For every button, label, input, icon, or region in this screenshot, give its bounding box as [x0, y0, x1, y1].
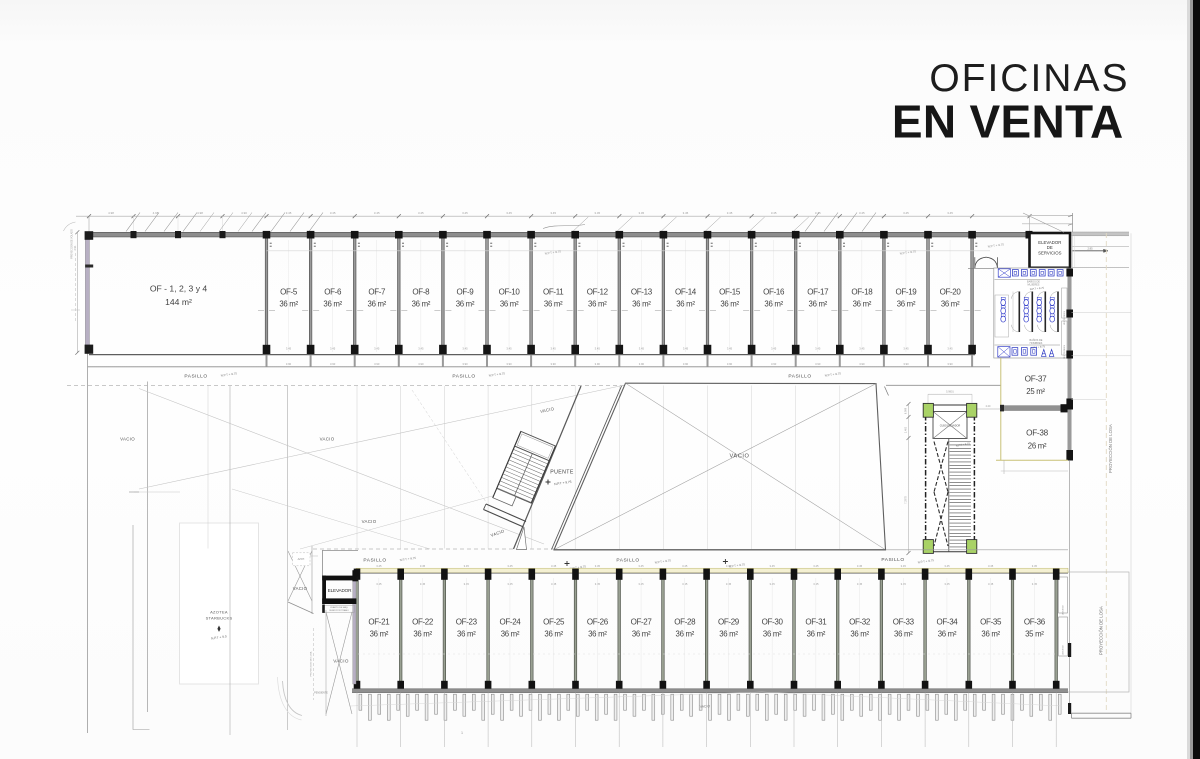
svg-text:OF-26: OF-26	[587, 618, 609, 627]
svg-text:3.45: 3.45	[770, 582, 776, 586]
svg-text:3.45: 3.45	[594, 211, 600, 215]
svg-text:3.90: 3.90	[330, 362, 336, 366]
svg-text:N.P.T + 9.75: N.P.T + 9.75	[899, 249, 916, 255]
svg-text:OF-24: OF-24	[499, 618, 521, 627]
svg-text:VACIO: VACIO	[320, 437, 335, 442]
svg-text:36 m²: 36 m²	[500, 300, 519, 309]
svg-text:3.45: 3.45	[506, 211, 512, 215]
svg-text:3.45: 3.45	[947, 211, 953, 215]
svg-text:3.45: 3.45	[286, 211, 292, 215]
svg-text:OF-5: OF-5	[280, 288, 298, 297]
svg-text:36 m²: 36 m²	[720, 300, 739, 309]
svg-text:PASILLO: PASILLO	[881, 557, 904, 563]
svg-text:VACIO: VACIO	[333, 659, 349, 664]
svg-text:VESTIDORES: VESTIDORES	[1064, 344, 1066, 359]
svg-text:PENDIENTE: PENDIENTE	[314, 692, 328, 695]
svg-text:OF-11: OF-11	[543, 288, 564, 297]
svg-text:36 m²: 36 m²	[676, 630, 695, 639]
svg-text:VACIO: VACIO	[120, 437, 135, 442]
svg-text:2.85: 2.85	[1087, 247, 1093, 251]
svg-text:OF - 1, 2, 3 y 4: OF - 1, 2, 3 y 4	[150, 284, 208, 294]
svg-text:3.45: 3.45	[813, 564, 819, 568]
svg-text:36 m²: 36 m²	[413, 630, 432, 639]
svg-text:OF-30: OF-30	[762, 618, 784, 627]
svg-text:3.45: 3.45	[901, 564, 907, 568]
svg-text:3.90: 3.90	[639, 362, 645, 366]
svg-text:OF-38: OF-38	[1026, 429, 1048, 438]
svg-text:OF-28: OF-28	[674, 618, 696, 627]
svg-text:3.45: 3.45	[770, 564, 776, 568]
svg-text:PROYECCIÓN DE LOSA: PROYECCIÓN DE LOSA	[1108, 424, 1113, 473]
svg-text:CUARTO DE MAQ.: CUARTO DE MAQ.	[330, 606, 348, 609]
svg-text:SERVICIOS: SERVICIOS	[1038, 251, 1061, 256]
svg-text:3.45: 3.45	[420, 564, 426, 568]
svg-text:36 m²: 36 m²	[544, 630, 563, 639]
svg-text:36 m²: 36 m²	[544, 300, 563, 309]
svg-text:SUBIR POR TRAMO: SUBIR POR TRAMO	[329, 609, 349, 612]
svg-text:OF-16: OF-16	[763, 288, 785, 297]
svg-text:3.45: 3.45	[551, 347, 557, 351]
svg-text:3.45: 3.45	[595, 564, 601, 568]
svg-text:3.45: 3.45	[595, 347, 601, 351]
svg-text:VACIO: VACIO	[540, 406, 555, 414]
svg-text:3.45: 3.45	[859, 347, 865, 351]
svg-text:N.P.T + 9.75: N.P.T + 9.75	[220, 371, 237, 377]
svg-text:PASILLO: PASILLO	[616, 557, 639, 563]
svg-text:VACIO: VACIO	[700, 704, 711, 709]
svg-text:25 m²: 25 m²	[1026, 387, 1045, 396]
svg-text:7.2978: 7.2978	[905, 496, 908, 504]
svg-text:3.45: 3.45	[464, 564, 470, 568]
svg-text:3.45: 3.45	[374, 347, 380, 351]
svg-text:3.45: 3.45	[330, 211, 336, 215]
svg-text:N.P.T + 9.75: N.P.T + 9.75	[824, 371, 841, 377]
svg-text:3.90: 3.90	[374, 362, 380, 366]
svg-text:AZOT.: AZOT.	[298, 558, 305, 561]
svg-text:3.45: 3.45	[682, 582, 688, 586]
svg-text:OF-9: OF-9	[457, 288, 475, 297]
svg-text:36 m²: 36 m²	[938, 630, 957, 639]
svg-text:OF-6: OF-6	[324, 288, 342, 297]
svg-text:3.90: 3.90	[286, 362, 292, 366]
svg-text:3.90: 3.90	[947, 362, 953, 366]
svg-text:3.45: 3.45	[376, 582, 382, 586]
svg-text:3.45: 3.45	[374, 211, 380, 215]
svg-text:AZOTEA: AZOTEA	[210, 610, 228, 615]
svg-text:3.45: 3.45	[903, 211, 909, 215]
svg-text:OF-23: OF-23	[456, 618, 478, 627]
svg-text:35 m²: 35 m²	[1025, 630, 1044, 639]
svg-text:3.90: 3.90	[506, 362, 512, 366]
svg-text:3.90: 3.90	[683, 362, 689, 366]
svg-text:PASILLO: PASILLO	[363, 557, 386, 563]
svg-text:3.90: 3.90	[859, 362, 865, 366]
svg-text:2.20: 2.20	[986, 405, 991, 408]
svg-text:3.45: 3.45	[462, 347, 468, 351]
svg-text:3.45: 3.45	[639, 347, 645, 351]
svg-text:3.45: 3.45	[947, 347, 953, 351]
svg-text:3.45: 3.45	[944, 582, 950, 586]
svg-text:OF-7: OF-7	[368, 288, 386, 297]
svg-text:36 m²: 36 m²	[676, 300, 695, 309]
svg-text:3.45: 3.45	[420, 582, 426, 586]
svg-text:OF-33: OF-33	[893, 618, 915, 627]
svg-text:OF-17: OF-17	[807, 288, 829, 297]
svg-text:1: 1	[461, 731, 463, 735]
svg-text:3.45: 3.45	[727, 211, 733, 215]
svg-text:36 m²: 36 m²	[763, 630, 782, 639]
svg-text:N.P.T + 9.75: N.P.T + 9.75	[987, 242, 1004, 248]
svg-text:OF-15: OF-15	[719, 288, 741, 297]
svg-text:EN VENTA: EN VENTA	[892, 96, 1124, 148]
svg-text:OF-10: OF-10	[499, 288, 521, 297]
svg-text:N.P.T + 9.75: N.P.T + 9.75	[654, 558, 671, 564]
svg-text:36 m²: 36 m²	[941, 300, 960, 309]
svg-text:3.45: 3.45	[507, 582, 513, 586]
svg-text:36 m²: 36 m²	[457, 630, 476, 639]
svg-text:VACIO: VACIO	[293, 586, 308, 591]
svg-text:STARBUCKS: STARBUCKS	[206, 616, 233, 621]
svg-text:36 m²: 36 m²	[981, 630, 1000, 639]
svg-text:OF-22: OF-22	[412, 618, 434, 627]
svg-text:3.45: 3.45	[330, 347, 336, 351]
svg-text:VACIO: VACIO	[730, 454, 750, 460]
svg-text:3.90: 3.90	[418, 362, 424, 366]
svg-text:3.45: 3.45	[857, 564, 863, 568]
svg-text:3.45: 3.45	[418, 347, 424, 351]
svg-text:VACIO: VACIO	[490, 528, 505, 538]
svg-text:5.9801: 5.9801	[946, 390, 954, 393]
svg-text:3.45: 3.45	[771, 347, 777, 351]
svg-text:MUJERES: MUJERES	[1028, 283, 1040, 286]
svg-text:VACIO: VACIO	[362, 519, 377, 524]
svg-text:3.45: 3.45	[683, 211, 689, 215]
svg-text:OF-35: OF-35	[980, 618, 1002, 627]
svg-text:36 m²: 36 m²	[807, 630, 826, 639]
svg-text:3.45: 3.45	[726, 582, 732, 586]
svg-text:3.45: 3.45	[506, 347, 512, 351]
svg-text:OF-36: OF-36	[1024, 618, 1046, 627]
svg-text:3.45: 3.45	[903, 347, 909, 351]
svg-text:OF-8: OF-8	[412, 288, 430, 297]
svg-text:OF-20: OF-20	[940, 288, 962, 297]
svg-text:3.45: 3.45	[813, 582, 819, 586]
svg-text:ACCESO: ACCESO	[1062, 645, 1065, 655]
svg-text:36 m²: 36 m²	[764, 300, 783, 309]
svg-text:3.45: 3.45	[464, 582, 470, 586]
svg-text:36 m²: 36 m²	[456, 300, 475, 309]
svg-text:3.90: 3.90	[903, 362, 909, 366]
svg-text:3.90: 3.90	[771, 362, 777, 366]
svg-text:3.45: 3.45	[815, 347, 821, 351]
svg-text:PUENTE: PUENTE	[550, 470, 574, 476]
svg-text:36 m²: 36 m²	[894, 630, 913, 639]
svg-text:OF-19: OF-19	[895, 288, 917, 297]
svg-text:OF-14: OF-14	[675, 288, 697, 297]
svg-text:PROYECCIÓN DE LOSA: PROYECCIÓN DE LOSA	[1099, 606, 1104, 655]
svg-text:3.45: 3.45	[901, 582, 907, 586]
svg-text:OF-34: OF-34	[936, 618, 958, 627]
svg-text:3.45: 3.45	[727, 347, 733, 351]
svg-text:3.45: 3.45	[639, 211, 645, 215]
svg-text:N.P.T + 9.75: N.P.T + 9.75	[554, 480, 572, 486]
svg-text:ELEVADOR: ELEVADOR	[1038, 240, 1061, 245]
svg-text:3.45: 3.45	[726, 564, 732, 568]
svg-text:ACCESO: ACCESO	[1062, 605, 1065, 615]
svg-text:OF-31: OF-31	[805, 618, 827, 627]
svg-text:3.45: 3.45	[1032, 564, 1038, 568]
svg-text:36 m²: 36 m²	[632, 630, 651, 639]
svg-text:36 m²: 36 m²	[897, 300, 916, 309]
svg-text:6.999: 6.999	[905, 407, 908, 414]
svg-text:3.45: 3.45	[462, 211, 468, 215]
svg-text:144 m²: 144 m²	[165, 297, 192, 307]
svg-text:PASILLO: PASILLO	[788, 373, 811, 379]
svg-text:OF-18: OF-18	[851, 288, 873, 297]
svg-text:PROYECCION DE VOLADO: PROYECCION DE VOLADO	[71, 229, 74, 259]
svg-text:3.45: 3.45	[418, 211, 424, 215]
svg-text:DE: DE	[1047, 245, 1053, 250]
svg-text:3.45: 3.45	[1032, 582, 1038, 586]
svg-text:3.45: 3.45	[550, 211, 556, 215]
svg-text:36 m²: 36 m²	[853, 300, 872, 309]
svg-text:3.45: 3.45	[859, 211, 865, 215]
svg-text:36 m²: 36 m²	[809, 300, 828, 309]
svg-text:3.45: 3.45	[551, 564, 557, 568]
svg-text:PROYECCION DE LOSA: PROYECCION DE LOSA	[309, 651, 312, 676]
svg-text:ELEVADOR: ELEVADOR	[328, 588, 352, 593]
svg-text:3.45: 3.45	[988, 582, 994, 586]
svg-text:36 m²: 36 m²	[850, 630, 869, 639]
svg-text:4.98: 4.98	[108, 211, 114, 215]
svg-text:36 m²: 36 m²	[588, 630, 607, 639]
svg-text:3.90: 3.90	[727, 362, 733, 366]
svg-text:OFICINAS: OFICINAS	[929, 57, 1129, 100]
svg-text:1.400: 1.400	[905, 426, 908, 433]
svg-text:3.45: 3.45	[857, 582, 863, 586]
svg-text:CUBO ELEVADOR: CUBO ELEVADOR	[940, 425, 961, 428]
svg-text:OF-21: OF-21	[368, 618, 390, 627]
svg-text:3.45: 3.45	[376, 564, 382, 568]
svg-text:OF-25: OF-25	[543, 618, 565, 627]
svg-text:36 m²: 36 m²	[368, 300, 387, 309]
svg-text:OF-27: OF-27	[631, 618, 653, 627]
svg-text:3.45: 3.45	[682, 564, 688, 568]
svg-text:PASILLO: PASILLO	[184, 373, 207, 379]
svg-text:36 m²: 36 m²	[279, 300, 298, 309]
svg-text:4.98: 4.98	[197, 211, 203, 215]
svg-text:36 m²: 36 m²	[370, 630, 389, 639]
svg-text:N.P.T + 9.75: N.P.T + 9.75	[399, 556, 416, 562]
svg-text:36 m²: 36 m²	[412, 300, 431, 309]
svg-text:OF-12: OF-12	[587, 288, 609, 297]
svg-text:36 m²: 36 m²	[588, 300, 607, 309]
svg-text:PASILLO: PASILLO	[452, 373, 475, 379]
svg-text:3.45: 3.45	[286, 347, 292, 351]
svg-text:3.45: 3.45	[771, 211, 777, 215]
svg-text:26 m²: 26 m²	[1028, 442, 1047, 451]
svg-text:36 m²: 36 m²	[323, 300, 342, 309]
svg-text:3.45: 3.45	[595, 582, 601, 586]
svg-text:3.90: 3.90	[551, 362, 557, 366]
svg-text:3.90: 3.90	[595, 362, 601, 366]
svg-text:3.45: 3.45	[988, 564, 994, 568]
svg-text:OF-32: OF-32	[849, 618, 871, 627]
svg-text:4.90: 4.90	[241, 211, 247, 215]
svg-text:3.45: 3.45	[551, 582, 557, 586]
svg-text:N.P.T + 9.75: N.P.T + 9.75	[488, 371, 505, 377]
svg-text:3.45: 3.45	[683, 347, 689, 351]
svg-text:3.45: 3.45	[638, 564, 644, 568]
svg-text:36 m²: 36 m²	[719, 630, 738, 639]
svg-text:OF-37: OF-37	[1025, 375, 1047, 384]
svg-text:36 m²: 36 m²	[632, 300, 651, 309]
svg-text:3.90: 3.90	[815, 362, 821, 366]
svg-text:3.90: 3.90	[462, 362, 468, 366]
svg-text:3.45: 3.45	[944, 564, 950, 568]
svg-text:OF-29: OF-29	[718, 618, 740, 627]
svg-text:36 m²: 36 m²	[501, 630, 520, 639]
svg-text:VESTIDORES: VESTIDORES	[1064, 310, 1066, 325]
svg-text:N.P.T + 9.75: N.P.T + 9.75	[917, 558, 934, 564]
svg-text:3.45: 3.45	[638, 582, 644, 586]
svg-text:3.45: 3.45	[507, 564, 513, 568]
svg-text:OF-13: OF-13	[631, 288, 653, 297]
